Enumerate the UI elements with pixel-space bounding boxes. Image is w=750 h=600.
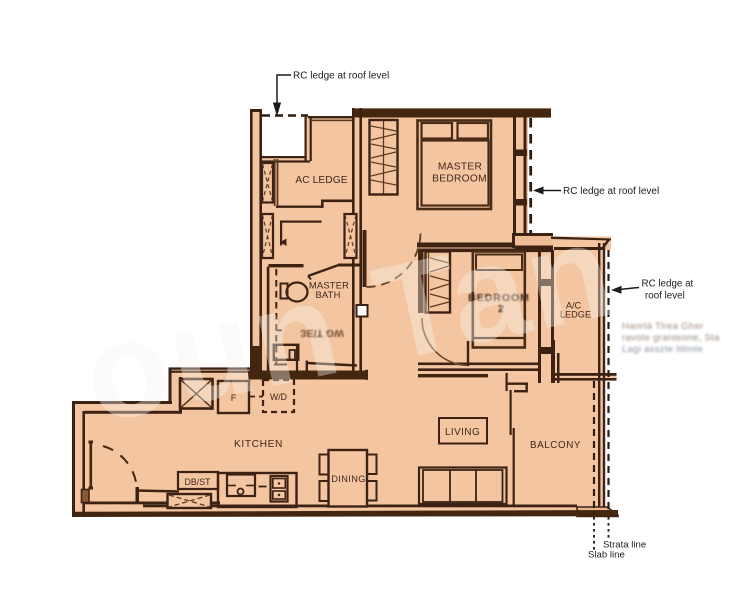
svg-text:AC LEDGE: AC LEDGE [295, 175, 347, 186]
svg-text:RC ledge at: RC ledge at [642, 279, 694, 290]
svg-text:RC ledge at roof level: RC ledge at roof level [293, 71, 389, 82]
svg-text:WG T/ƎԐ: WG T/ƎԐ [300, 327, 344, 339]
svg-text:ravote granteone, Sta: ravote granteone, Sta [622, 333, 720, 344]
svg-text:KITCHEN: KITCHEN [234, 439, 283, 450]
svg-text:MASTER: MASTER [438, 162, 482, 173]
svg-text:RC ledge at roof level: RC ledge at roof level [563, 186, 659, 197]
svg-text:Slab line: Slab line [588, 550, 625, 561]
svg-text:Lagi asszte litlmte: Lagi asszte litlmte [622, 344, 703, 355]
svg-text:BALCONY: BALCONY [530, 440, 581, 451]
svg-text:roof level: roof level [645, 291, 685, 302]
svg-text:BEDROOM: BEDROOM [432, 174, 487, 185]
svg-text:DB/ST: DB/ST [185, 477, 212, 487]
svg-text:LIVING: LIVING [445, 427, 480, 438]
svg-text:Hanrtä Tlrea Gher: Hanrtä Tlrea Gher [622, 321, 704, 332]
svg-text:DINING: DINING [331, 474, 366, 484]
